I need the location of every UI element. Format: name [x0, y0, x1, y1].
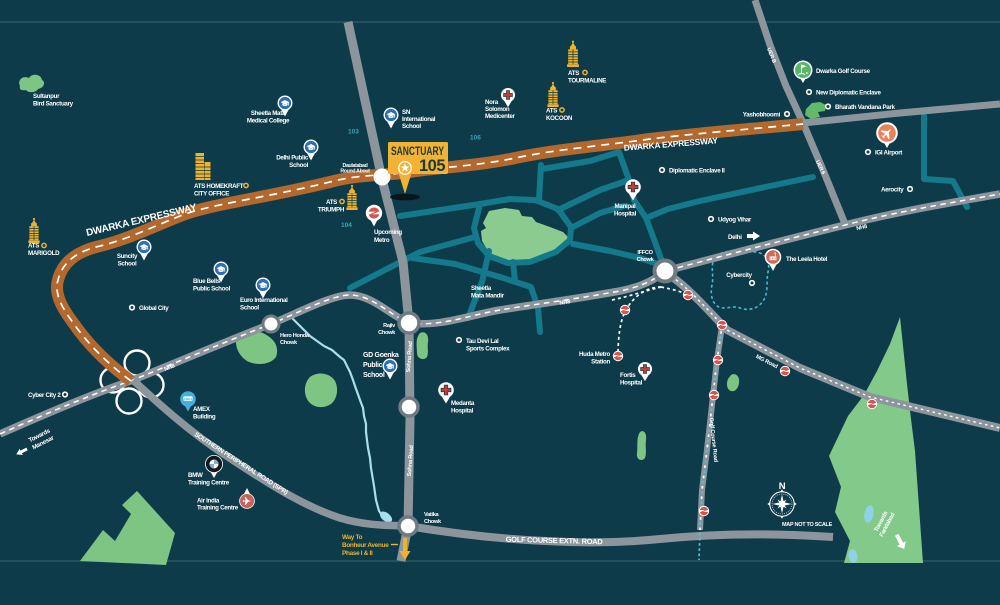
svg-text:MAP NOT TO SCALE: MAP NOT TO SCALE — [782, 522, 832, 528]
svg-text:103: 103 — [348, 129, 359, 136]
svg-text:IFFCOChowk: IFFCOChowk — [637, 250, 655, 263]
svg-text:Cybercity: Cybercity — [726, 272, 752, 279]
svg-text:New Diplomatic Enclave: New Diplomatic Enclave — [816, 90, 881, 97]
svg-text:Delhi: Delhi — [728, 234, 742, 241]
svg-text:Dwarka Golf Course: Dwarka Golf Course — [816, 68, 871, 75]
svg-text:N: N — [779, 481, 786, 492]
svg-text:AMEX: AMEX — [184, 397, 193, 401]
svg-text:Bharath Vandana Park: Bharath Vandana Park — [835, 104, 896, 111]
svg-text:104: 104 — [341, 222, 352, 229]
svg-text:MedantaHospital: MedantaHospital — [451, 400, 475, 415]
svg-text:SuncitySchool: SuncitySchool — [117, 253, 138, 268]
svg-text:Sheetla MataMedical College: Sheetla MataMedical College — [247, 110, 290, 125]
svg-text:IGI Airport: IGI Airport — [875, 150, 902, 157]
svg-text:Aerocity: Aerocity — [881, 187, 904, 194]
svg-text:The Leela Hotel: The Leela Hotel — [786, 256, 828, 263]
svg-text:Cyber City 2: Cyber City 2 — [28, 392, 61, 399]
svg-text:DaulatabadRound About: DaulatabadRound About — [340, 163, 370, 175]
svg-text:Yashobhoomi: Yashobhoomi — [743, 112, 781, 119]
svg-text:106: 106 — [470, 135, 481, 142]
svg-text:Global City: Global City — [139, 305, 169, 312]
svg-text:ManipalHospital: ManipalHospital — [614, 203, 637, 218]
svg-text:105: 105 — [419, 157, 445, 175]
svg-text:Diplomatic Enclave II: Diplomatic Enclave II — [669, 168, 725, 175]
svg-text:Udyog Vihar: Udyog Vihar — [718, 217, 752, 224]
